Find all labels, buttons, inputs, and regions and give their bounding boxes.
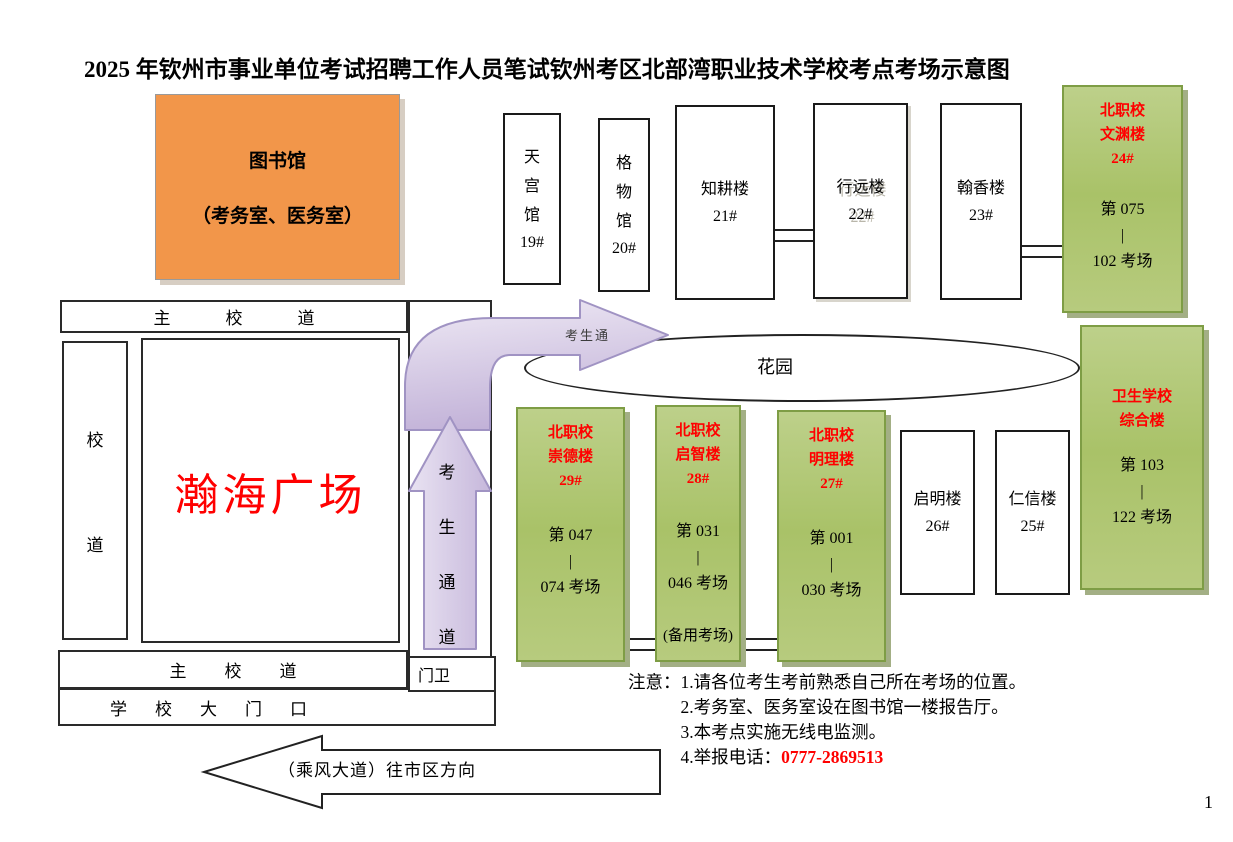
title-exam-name: 2025 年钦州市事业单位考试招聘工作人员笔试 — [84, 57, 550, 82]
connector-chongde-qizhi — [625, 638, 655, 651]
campus-road: 校 道 — [62, 341, 128, 640]
building-name: 知耕楼 — [701, 176, 749, 204]
building-name: 启明楼 — [913, 486, 961, 514]
exam-building-qizhi: 北职校 启智楼 28# 第 031 | 046 考场 (备用考场) — [655, 405, 741, 662]
library-name: 图书馆 — [249, 146, 306, 173]
exam-building-weisheng: 卫生学校 综合楼 第 103 | 122 考场 — [1080, 325, 1204, 590]
building-xingyuan: 行远楼 22# — [813, 103, 908, 299]
campus-road-char-2: 道 — [87, 531, 104, 556]
exam-building-name: 启智楼 — [675, 443, 720, 467]
rooms-separator: | — [1112, 479, 1172, 505]
rooms-to: 046 考场 — [668, 571, 728, 597]
rooms-to: 122 考场 — [1112, 505, 1172, 531]
candidate-path-curve-label: 考生通 — [565, 325, 610, 344]
page-title: 2025 年钦州市事业单位考试招聘工作人员笔试钦州考区北部湾职业技术学校考点考场… — [84, 50, 1010, 84]
rooms-to: 074 考场 — [540, 575, 600, 601]
notes-block: 注意： 1.请各位考生考前熟悉自己所在考场的位置。 2.考务室、医务室设在图书馆… — [628, 670, 1026, 770]
main-road-bottom-label: 主校道 — [170, 657, 335, 682]
building-number: 23# — [969, 203, 993, 229]
rooms-separator: | — [801, 552, 861, 578]
rooms-to: 030 考场 — [801, 578, 861, 604]
school-gate-bar: 学校大门口 — [58, 688, 496, 726]
building-renxin: 仁信楼 25# — [995, 430, 1070, 595]
rooms-separator: | — [668, 545, 728, 571]
campus-road-char-1: 校 — [87, 426, 104, 451]
main-road-top-label: 主校道 — [154, 304, 370, 329]
building-qiming: 启明楼 26# — [900, 430, 975, 595]
building-name: 翰香楼 — [957, 175, 1005, 203]
building-name-char: 馆 — [524, 201, 540, 230]
note-item-4: 4.举报电话：0777-2869513 — [681, 745, 1027, 770]
note-item-2: 2.考务室、医务室设在图书馆一楼报告厅。 — [681, 695, 1027, 720]
rooms-to: 102 考场 — [1092, 249, 1152, 275]
notes-items: 1.请各位考生考前熟悉自己所在考场的位置。 2.考务室、医务室设在图书馆一楼报告… — [681, 670, 1027, 770]
building-name: 行远楼 — [836, 174, 884, 202]
exam-building-wenyuan: 北职校 文渊楼 24# 第 075 | 102 考场 — [1062, 85, 1183, 313]
exam-building-number: 27# — [820, 472, 843, 496]
candidate-path-char-3: 通 — [439, 568, 456, 593]
street-direction-label: （乘风大道）往市区方向 — [278, 756, 476, 781]
exam-building-name: 文渊楼 — [1100, 123, 1145, 147]
school-gate-label: 学校大门口 — [110, 695, 335, 720]
building-name-char: 馆 — [616, 207, 632, 236]
building-hanxiang: 翰香楼 23# — [940, 103, 1022, 300]
exam-building-number: 28# — [687, 467, 710, 491]
connector-hanxiang-wenyuan — [1022, 245, 1063, 258]
candidate-path-char-2: 生 — [439, 513, 456, 538]
report-phone-number: 0777-2869513 — [781, 747, 883, 767]
building-number: 25# — [1021, 514, 1045, 540]
exam-building-school: 北职校 — [1100, 99, 1145, 123]
building-number: 26# — [926, 514, 950, 540]
connector-qizhi-mingli — [741, 638, 777, 651]
exam-building-chongde: 北职校 崇德楼 29# 第 047 | 074 考场 — [516, 407, 625, 662]
building-name-char: 格 — [616, 149, 632, 178]
building-library: 图书馆 （考务室、医务室） — [155, 94, 400, 280]
exam-building-name: 崇德楼 — [548, 445, 593, 469]
building-number: 21# — [713, 204, 737, 230]
note-item-4-label: 4.举报电话： — [681, 747, 782, 767]
note-item-3: 3.本考点实施无线电监测。 — [681, 720, 1027, 745]
building-zhigeng: 知耕楼 21# — [675, 105, 775, 300]
rooms-from: 第 001 — [801, 526, 861, 552]
rooms-separator: | — [1092, 223, 1152, 249]
hanhai-plaza: 瀚海广场 — [141, 338, 400, 643]
exam-venue-map: 2025 年钦州市事业单位考试招聘工作人员笔试钦州考区北部湾职业技术学校考点考场… — [0, 0, 1233, 842]
guard-post: 门卫 — [408, 656, 496, 692]
exam-building-mingli: 北职校 明理楼 27# 第 001 | 030 考场 — [777, 410, 886, 662]
note-item-1: 1.请各位考生考前熟悉自己所在考场的位置。 — [681, 670, 1027, 695]
hanhai-plaza-label: 瀚海广场 — [175, 459, 367, 523]
title-venue-name: 钦州考区北部湾职业技术学校考点考场示意图 — [550, 56, 1010, 82]
building-name-char: 物 — [616, 178, 632, 207]
building-number: 22# — [849, 202, 873, 228]
building-number: 19# — [520, 230, 544, 256]
building-tiangong: 天 宫 馆 19# — [503, 113, 561, 285]
rooms-from: 第 103 — [1112, 453, 1172, 479]
exam-building-school: 北职校 — [809, 424, 854, 448]
connector-zhigeng-xingyuan — [775, 229, 813, 242]
main-road-bottom: 主校道 — [58, 650, 408, 689]
exam-building-name: 综合楼 — [1119, 409, 1164, 433]
building-gewu: 格 物 馆 20# — [598, 118, 650, 292]
exam-building-school: 北职校 — [675, 419, 720, 443]
rooms-from: 第 031 — [668, 519, 728, 545]
exam-building-note: (备用考场) — [663, 623, 733, 649]
building-name-char: 宫 — [524, 172, 540, 201]
rooms-from: 第 047 — [540, 523, 600, 549]
candidate-path-label: 考 生 通 道 — [436, 458, 458, 648]
building-name-char: 天 — [524, 143, 540, 172]
rooms-from: 第 075 — [1092, 197, 1152, 223]
building-number: 20# — [612, 236, 636, 262]
candidate-path-char-4: 道 — [439, 623, 456, 648]
main-road-top: 主校道 — [60, 300, 408, 333]
exam-building-name: 明理楼 — [809, 448, 854, 472]
library-rooms: （考务室、医务室） — [192, 201, 363, 228]
page-number: 1 — [1204, 792, 1213, 813]
rooms-separator: | — [540, 549, 600, 575]
candidate-path-char-1: 考 — [439, 458, 456, 483]
guard-post-label: 门卫 — [418, 662, 450, 686]
exam-building-number: 24# — [1111, 147, 1134, 171]
exam-building-school: 卫生学校 — [1112, 385, 1172, 409]
building-name: 仁信楼 — [1008, 486, 1056, 514]
garden-label: 花园 — [757, 353, 793, 379]
exam-building-number: 29# — [559, 469, 582, 493]
